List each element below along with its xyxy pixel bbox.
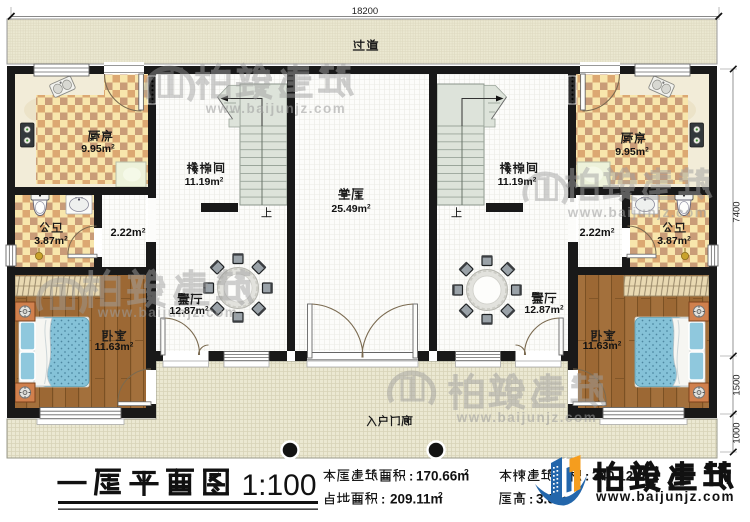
svg-text:www.baijunjz.com: www.baijunjz.com [595,489,735,504]
svg-text:2.22m2: 2.22m2 [111,227,146,239]
svg-text:18200: 18200 [352,6,378,17]
svg-text:11.19m2: 11.19m2 [498,176,537,188]
svg-text::: : [409,469,413,484]
svg-text::: : [381,492,385,507]
svg-text:209.11m: 209.11m [390,492,443,507]
svg-text:11.19m2: 11.19m2 [185,176,224,188]
svg-text:9.95m2: 9.95m2 [81,143,115,155]
svg-text:www.baijunjz.com: www.baijunjz.com [205,101,347,116]
svg-text:7400: 7400 [732,201,743,222]
svg-text:www.baijunjz.com: www.baijunjz.com [567,205,709,220]
svg-text:2.22m2: 2.22m2 [580,227,615,239]
svg-text:1000: 1000 [732,422,743,443]
svg-text:2: 2 [464,467,469,477]
svg-text:25.49m2: 25.49m2 [331,203,371,215]
svg-text:1500: 1500 [732,374,743,395]
svg-text:12.87m2: 12.87m2 [524,304,564,316]
svg-text:www.baijunjz.com: www.baijunjz.com [456,410,598,425]
svg-text:2: 2 [438,490,443,500]
svg-text:11.63m2: 11.63m2 [95,341,134,353]
svg-text::: : [529,492,533,507]
svg-text:1:100: 1:100 [241,469,316,502]
svg-text:www.baijunjz.com: www.baijunjz.com [97,305,239,320]
svg-text:3.87m2: 3.87m2 [34,235,68,247]
svg-text:170.66m: 170.66m [416,469,469,484]
svg-text:11.63m2: 11.63m2 [583,340,622,352]
svg-text:9.95m2: 9.95m2 [615,146,649,158]
svg-text:12.87m2: 12.87m2 [169,305,209,317]
svg-text::: : [585,469,589,484]
svg-text:3.87m2: 3.87m2 [657,235,691,247]
